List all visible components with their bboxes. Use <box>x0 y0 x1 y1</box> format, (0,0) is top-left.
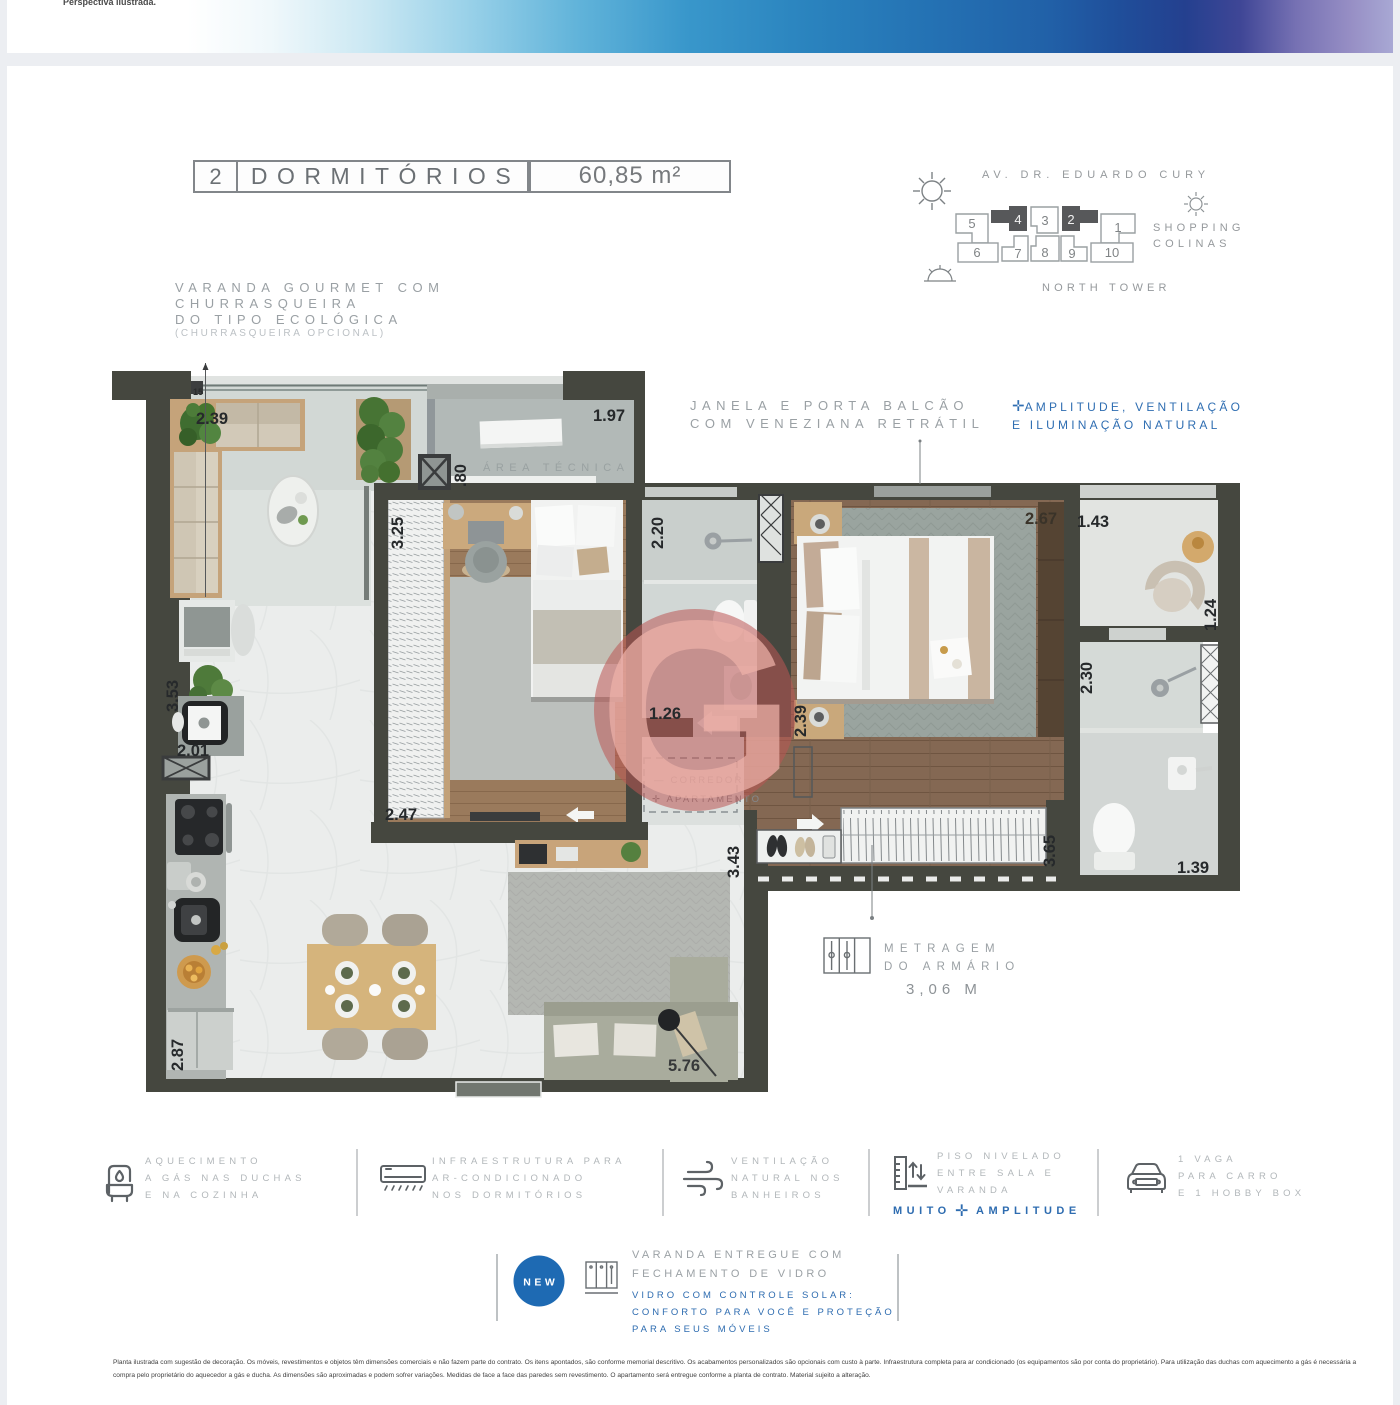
svg-text:1.24: 1.24 <box>1202 598 1220 631</box>
svg-text:VENTILAÇÃO: VENTILAÇÃO <box>731 1156 833 1167</box>
svg-text:2.39: 2.39 <box>196 410 228 428</box>
svg-text:COLINAS: COLINAS <box>1153 238 1231 250</box>
svg-text:NORTH TOWER: NORTH TOWER <box>1042 282 1171 294</box>
svg-text:PISO NIVELADO: PISO NIVELADO <box>937 1151 1065 1162</box>
svg-text:2.20: 2.20 <box>649 517 667 549</box>
svg-text:2.67: 2.67 <box>1025 510 1057 528</box>
svg-text:1.97: 1.97 <box>593 407 625 425</box>
svg-text:1.26: 1.26 <box>649 705 681 723</box>
svg-text:3.65: 3.65 <box>1041 835 1059 867</box>
svg-text:✛: ✛ <box>955 1203 968 1220</box>
svg-text:VIDRO COM CONTROLE SOLAR:: VIDRO COM CONTROLE SOLAR: <box>632 1290 855 1301</box>
svg-text:10: 10 <box>1105 245 1119 260</box>
svg-text:PARA SEUS MÓVEIS: PARA SEUS MÓVEIS <box>632 1324 773 1335</box>
svg-text:3.43: 3.43 <box>725 846 743 878</box>
svg-text:1: 1 <box>1114 220 1121 235</box>
svg-text:E NA COZINHA: E NA COZINHA <box>145 1190 262 1201</box>
svg-text:2.47: 2.47 <box>385 806 417 824</box>
svg-text:2.30: 2.30 <box>1078 662 1096 694</box>
svg-text:.80: .80 <box>452 464 470 487</box>
svg-text:E 1 HOBBY BOX: E 1 HOBBY BOX <box>1178 1188 1305 1199</box>
svg-text:4: 4 <box>1014 212 1021 227</box>
svg-text:VARANDA ENTREGUE COM: VARANDA ENTREGUE COM <box>632 1249 845 1261</box>
svg-text:5: 5 <box>968 216 975 231</box>
svg-text:G: G <box>599 569 795 850</box>
svg-text:5.76: 5.76 <box>668 1057 700 1075</box>
svg-text:7: 7 <box>1014 246 1021 261</box>
svg-text:INFRAESTRUTURA PARA: INFRAESTRUTURA PARA <box>432 1156 626 1167</box>
svg-text:1.43: 1.43 <box>1077 513 1109 531</box>
svg-text:ENTRE SALA E: ENTRE SALA E <box>937 1168 1055 1179</box>
svg-text:1.39: 1.39 <box>1177 859 1209 877</box>
svg-text:2.39: 2.39 <box>792 705 810 737</box>
svg-text:FECHAMENTO DE VIDRO: FECHAMENTO DE VIDRO <box>632 1268 830 1280</box>
svg-text:9: 9 <box>1068 246 1075 261</box>
svg-text:NEW: NEW <box>523 1277 558 1289</box>
svg-text:PARA CARRO: PARA CARRO <box>1178 1171 1282 1182</box>
svg-text:2.87: 2.87 <box>169 1039 187 1071</box>
svg-text:8: 8 <box>1041 245 1048 260</box>
svg-text:BANHEIROS: BANHEIROS <box>731 1190 825 1201</box>
svg-text:3.25: 3.25 <box>389 517 407 549</box>
svg-text:A GÁS NAS DUCHAS: A GÁS NAS DUCHAS <box>145 1173 306 1184</box>
svg-text:MUITO: MUITO <box>893 1205 951 1217</box>
svg-text:SHOPPING: SHOPPING <box>1153 222 1245 234</box>
svg-text:AR-CONDICIONADO: AR-CONDICIONADO <box>432 1173 586 1184</box>
svg-text:1 VAGA: 1 VAGA <box>1178 1154 1237 1165</box>
svg-text:3: 3 <box>1041 213 1048 228</box>
svg-text:CONFORTO PARA VOCÊ E PROTEÇÃO: CONFORTO PARA VOCÊ E PROTEÇÃO <box>632 1307 895 1318</box>
svg-text:VARANDA: VARANDA <box>937 1185 1012 1196</box>
svg-text:AMPLITUDE: AMPLITUDE <box>976 1205 1081 1217</box>
svg-text:NATURAL NOS: NATURAL NOS <box>731 1173 844 1184</box>
svg-text:2.01: 2.01 <box>177 742 209 760</box>
svg-text:6: 6 <box>973 245 980 260</box>
svg-text:2: 2 <box>1067 212 1074 227</box>
svg-text:3.53: 3.53 <box>164 680 182 712</box>
svg-text:AQUECIMENTO: AQUECIMENTO <box>145 1156 262 1167</box>
svg-text:NOS DORMITÓRIOS: NOS DORMITÓRIOS <box>432 1190 586 1201</box>
svg-text:15: 15 <box>193 387 203 397</box>
svg-text:AV. DR. EDUARDO CURY: AV. DR. EDUARDO CURY <box>982 169 1210 181</box>
svg-text:ÁREA TÉCNICA: ÁREA TÉCNICA <box>483 461 630 474</box>
